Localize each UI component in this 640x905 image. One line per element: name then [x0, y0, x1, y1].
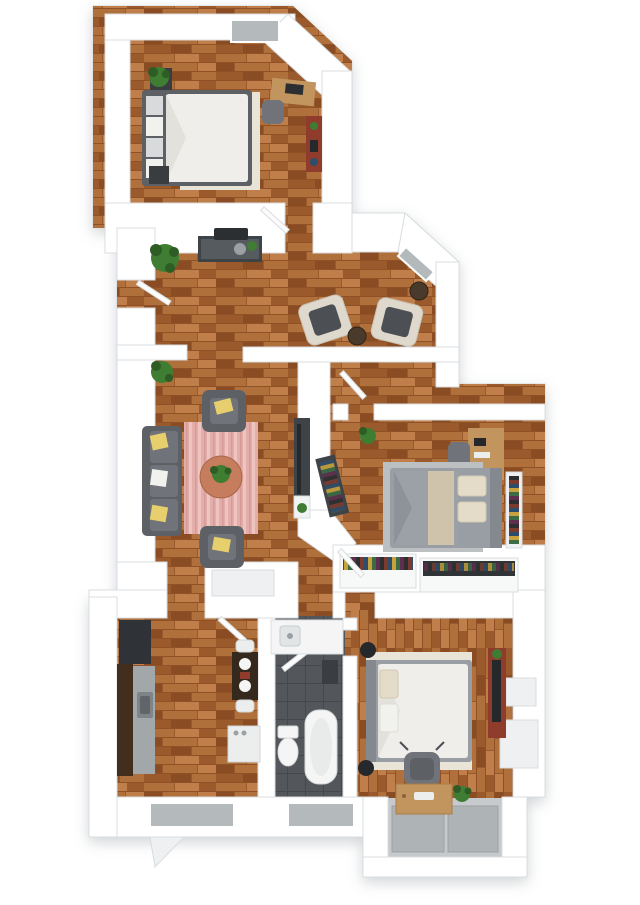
- cabinet-counter: [117, 664, 133, 776]
- dining-chair: [236, 640, 254, 652]
- round-coffee-table: [200, 456, 242, 498]
- double-bed: [366, 660, 472, 762]
- tv-console: [294, 418, 310, 518]
- plant: [297, 503, 307, 513]
- floor-plan-page: [0, 0, 640, 905]
- side-table: [348, 327, 366, 345]
- speaker: [358, 760, 374, 776]
- counter-top: [133, 666, 155, 774]
- floor-plan-3d: [0, 0, 640, 905]
- storage-bench: [306, 116, 322, 172]
- tv-console: [488, 648, 506, 738]
- entry-door-swing: [150, 837, 184, 867]
- mirror: [322, 660, 338, 684]
- floor-plant: [151, 361, 173, 383]
- wall-niche: [212, 570, 274, 596]
- toilet: [278, 726, 298, 766]
- window-kitchen: [150, 803, 234, 827]
- sink: [137, 692, 153, 718]
- wardrobe-closet-2: [420, 558, 518, 592]
- double-bed: [390, 468, 502, 548]
- nightstand: [149, 166, 169, 184]
- window-bedroom-top: [231, 20, 279, 42]
- refrigerator: [119, 620, 151, 664]
- wall-shelf-bedroom-right: [506, 472, 522, 548]
- dishwasher: [228, 726, 260, 762]
- dining-table: [232, 652, 258, 700]
- bathtub: [305, 710, 337, 784]
- desk-chair: [262, 100, 284, 124]
- window-ledge-1: [506, 678, 536, 706]
- vanity-sink: [271, 620, 343, 654]
- dining-chair: [236, 700, 254, 712]
- side-table: [410, 282, 428, 300]
- desk: [396, 784, 452, 814]
- lounge-chair: [200, 526, 244, 568]
- speaker: [360, 642, 376, 658]
- lounge-chair: [202, 390, 246, 432]
- gray-sofa: [142, 426, 182, 536]
- floor-mat: [448, 806, 498, 852]
- window-bathroom: [288, 803, 354, 827]
